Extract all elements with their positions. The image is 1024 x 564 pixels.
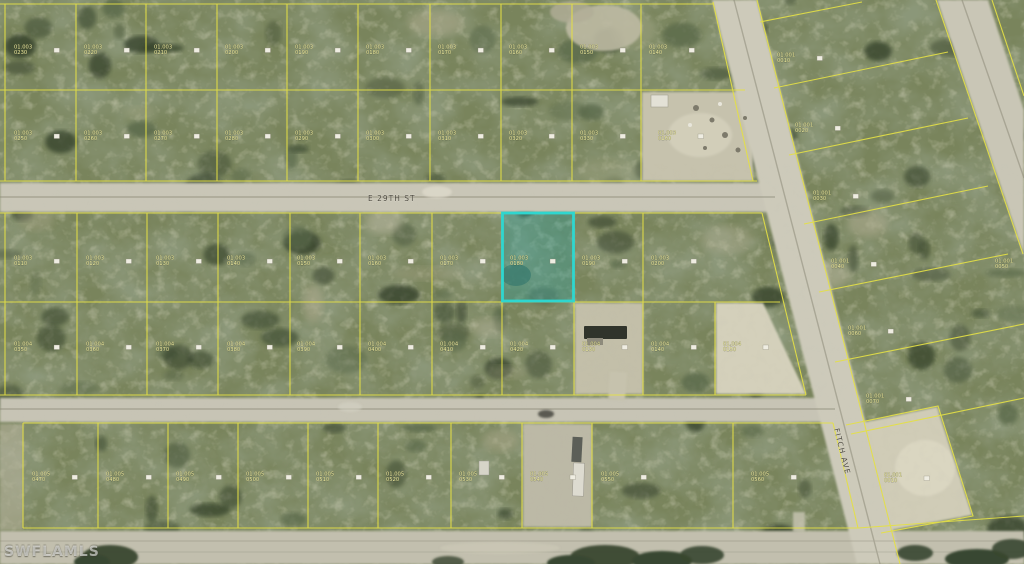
lot-marker — [620, 48, 626, 53]
lot-marker — [126, 259, 132, 264]
lot-marker — [480, 259, 486, 264]
lot-marker — [622, 345, 628, 350]
lot-marker — [480, 345, 486, 350]
lot-marker — [478, 134, 484, 139]
lot-marker — [216, 475, 222, 480]
lot-marker — [791, 475, 797, 480]
lot-marker — [194, 48, 200, 53]
shed — [651, 95, 668, 107]
lot-marker — [924, 476, 930, 481]
lot-marker — [337, 345, 343, 350]
lot-marker — [426, 475, 432, 480]
lot-marker — [54, 134, 60, 139]
lot-marker — [691, 259, 697, 264]
lot-marker — [265, 134, 271, 139]
lot-marker — [478, 48, 484, 53]
lot-marker — [570, 475, 576, 480]
lot-marker — [549, 134, 555, 139]
highlight-shrub-tint — [501, 264, 531, 286]
building-roof — [584, 326, 627, 339]
lot-marker — [550, 259, 556, 264]
lot-marker — [888, 329, 894, 334]
lot-marker — [698, 134, 704, 139]
lot-marker — [871, 262, 877, 267]
lot-marker — [549, 48, 555, 53]
lot-marker — [335, 134, 341, 139]
lot-marker — [906, 397, 912, 402]
lot-marker — [499, 475, 505, 480]
lot-marker — [406, 48, 412, 53]
lot-marker — [124, 134, 130, 139]
lot-marker — [267, 345, 273, 350]
lot-marker — [267, 259, 273, 264]
lot-marker — [146, 475, 152, 480]
aerial-parcel-map: 01.003023001.003022001.003021001.0030200… — [0, 0, 1024, 564]
lot-marker — [620, 134, 626, 139]
lot-marker — [622, 259, 628, 264]
street-label-e-29th-st: E 29TH ST — [368, 194, 416, 203]
mls-watermark: SWFLAMLS — [4, 544, 100, 560]
lot-marker — [335, 48, 341, 53]
lot-marker — [853, 194, 859, 199]
lot-marker — [286, 475, 292, 480]
lot-marker — [194, 134, 200, 139]
lot-marker — [126, 345, 132, 350]
lot-marker — [54, 48, 60, 53]
map-canvas: 01.003023001.003022001.003021001.0030200… — [0, 0, 1024, 564]
lot-marker — [265, 48, 271, 53]
lot-marker — [641, 475, 647, 480]
lot-marker — [406, 134, 412, 139]
lot-marker — [691, 345, 697, 350]
lot-marker — [763, 345, 769, 350]
lot-marker — [54, 345, 60, 350]
lot-marker — [356, 475, 362, 480]
lot-marker — [337, 259, 343, 264]
lot-marker — [689, 48, 695, 53]
lot-marker — [54, 259, 60, 264]
lot-marker — [817, 56, 823, 61]
lot-marker — [72, 475, 78, 480]
lot-marker — [196, 259, 202, 264]
lot-marker — [196, 345, 202, 350]
lot-marker — [408, 345, 414, 350]
lot-marker — [408, 259, 414, 264]
lot-marker — [550, 345, 556, 350]
lot-marker — [835, 126, 841, 131]
lot-marker — [124, 48, 130, 53]
